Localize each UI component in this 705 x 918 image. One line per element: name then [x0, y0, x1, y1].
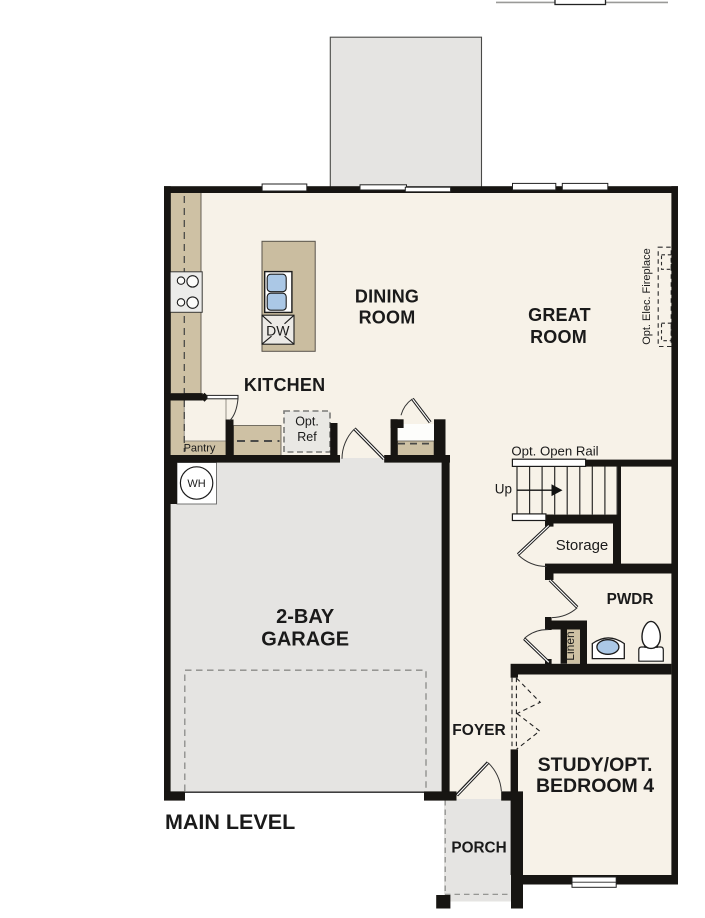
svg-text:PORCH: PORCH [451, 839, 506, 856]
svg-text:GREAT: GREAT [528, 305, 591, 325]
svg-text:KITCHEN: KITCHEN [244, 375, 325, 395]
svg-text:DINING: DINING [355, 287, 419, 307]
svg-text:ROOM: ROOM [359, 308, 416, 328]
svg-text:Up: Up [495, 482, 512, 497]
svg-text:Opt. Open Rail: Opt. Open Rail [511, 444, 598, 459]
svg-text:WH: WH [187, 478, 205, 490]
svg-text:Pantry: Pantry [184, 443, 216, 455]
svg-text:Ref: Ref [297, 430, 317, 444]
svg-text:STUDY/OPT.: STUDY/OPT. [538, 754, 653, 776]
svg-text:FOYER: FOYER [452, 722, 505, 739]
svg-text:MAIN LEVEL: MAIN LEVEL [165, 810, 295, 834]
svg-text:BEDROOM 4: BEDROOM 4 [536, 775, 654, 797]
svg-text:PWDR: PWDR [607, 591, 654, 608]
svg-text:ROOM: ROOM [530, 327, 587, 347]
svg-text:Opt.: Opt. [295, 414, 319, 428]
svg-text:DW: DW [266, 322, 290, 338]
svg-text:Storage: Storage [556, 537, 609, 554]
svg-text:Linen: Linen [563, 631, 577, 660]
svg-text:GARAGE: GARAGE [261, 629, 349, 651]
svg-text:Opt. Elec. Fireplace: Opt. Elec. Fireplace [641, 248, 653, 345]
svg-text:2-BAY: 2-BAY [276, 606, 335, 628]
